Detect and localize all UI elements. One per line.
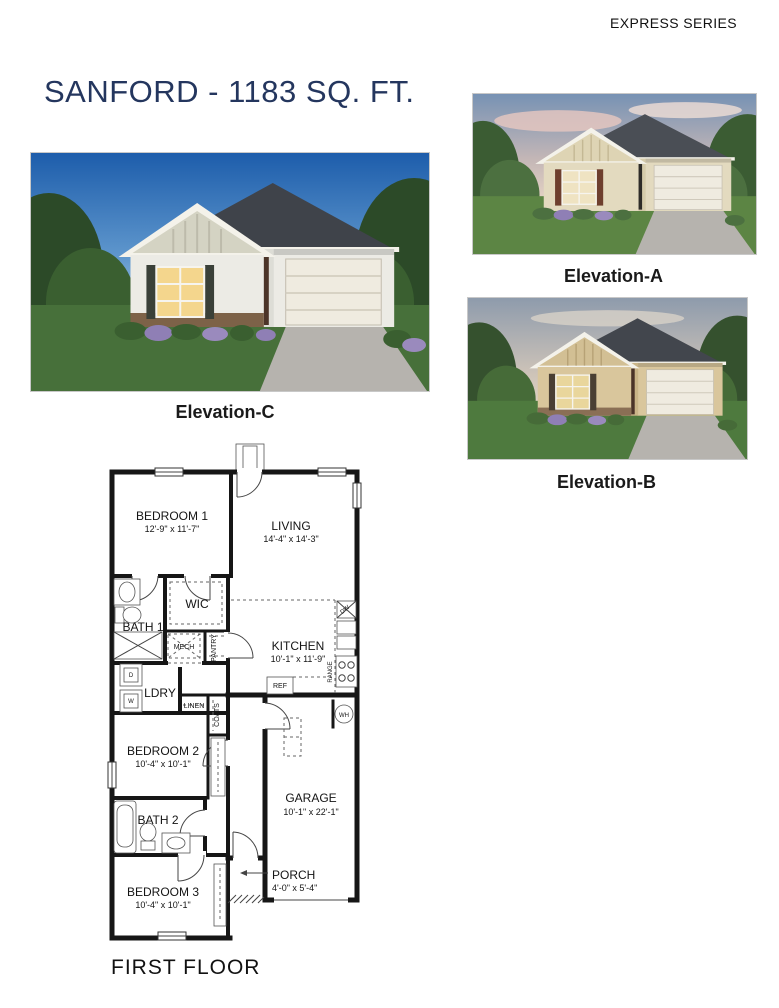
room-living: LIVING: [271, 519, 310, 533]
room-bedroom1-dims: 12'-9" x 11'-7": [145, 524, 200, 534]
elevation-c-illustration: [31, 153, 429, 391]
room-bedroom3: BEDROOM 3: [127, 885, 199, 899]
room-ldry: LDRY: [144, 686, 176, 700]
room-porch: PORCH: [272, 868, 315, 882]
room-wic: WIC: [185, 597, 209, 611]
room-bedroom1: BEDROOM 1: [136, 509, 208, 523]
window-shutter: [549, 374, 555, 411]
page-title: SANFORD - 1183 SQ. FT.: [44, 74, 414, 110]
label-wh: WH: [339, 713, 349, 719]
window-shutter: [205, 265, 214, 319]
room-bedroom2-dims: 10'-4" x 10'-1": [135, 759, 190, 769]
flyer-page: EXPRESS SERIES SANFORD - 1183 SQ. FT.: [0, 0, 779, 1008]
room-kitchen-dims: 10'-1" x 11'-9": [271, 654, 326, 664]
exterior-walls: [112, 472, 357, 938]
floor-plan: BEDROOM 1 12'-9" x 11'-7" LIVING 14'-4" …: [100, 440, 370, 990]
window-shutter: [597, 169, 603, 205]
room-bedroom2: BEDROOM 2: [127, 744, 199, 758]
label-coats: COATS: [214, 703, 221, 727]
room-bath2: BATH 2: [137, 813, 178, 827]
elevation-c-photo: [30, 152, 430, 392]
label-pantry: PANTRY: [211, 634, 218, 662]
label-dryer: D: [129, 673, 134, 679]
elevation-b-label: Elevation-B: [467, 472, 746, 493]
room-garage-dims: 10'-1" x 22'-1": [283, 807, 338, 817]
floor-caption: FIRST FLOOR: [111, 956, 260, 980]
elevation-b-photo: [467, 297, 748, 460]
elevation-c-label: Elevation-C: [100, 402, 350, 423]
label-linen: LINEN: [184, 703, 205, 710]
room-kitchen: KITCHEN: [272, 639, 325, 653]
room-bath1: BATH 1: [122, 620, 163, 634]
elevation-a-photo: [472, 93, 757, 255]
window-shutter: [590, 374, 596, 411]
series-label: EXPRESS SERIES: [610, 15, 737, 31]
room-living-dims: 14'-4" x 14'-3": [263, 534, 318, 544]
windows: [108, 468, 361, 940]
elevation-b-illustration: [468, 298, 747, 459]
label-ref: REF: [273, 683, 287, 690]
label-mech: MECH: [174, 644, 195, 651]
window-shutter: [555, 169, 561, 205]
room-porch-dims: 4'-0" x 5'-4": [272, 883, 317, 893]
room-garage: GARAGE: [285, 791, 336, 805]
elevation-a-label: Elevation-A: [472, 266, 755, 287]
label-range: RANGE: [328, 661, 334, 682]
label-washer: W: [128, 699, 134, 705]
window-shutter: [146, 265, 155, 319]
elevation-a-illustration: [473, 94, 756, 254]
room-bedroom3-dims: 10'-4" x 10'-1": [135, 900, 190, 910]
